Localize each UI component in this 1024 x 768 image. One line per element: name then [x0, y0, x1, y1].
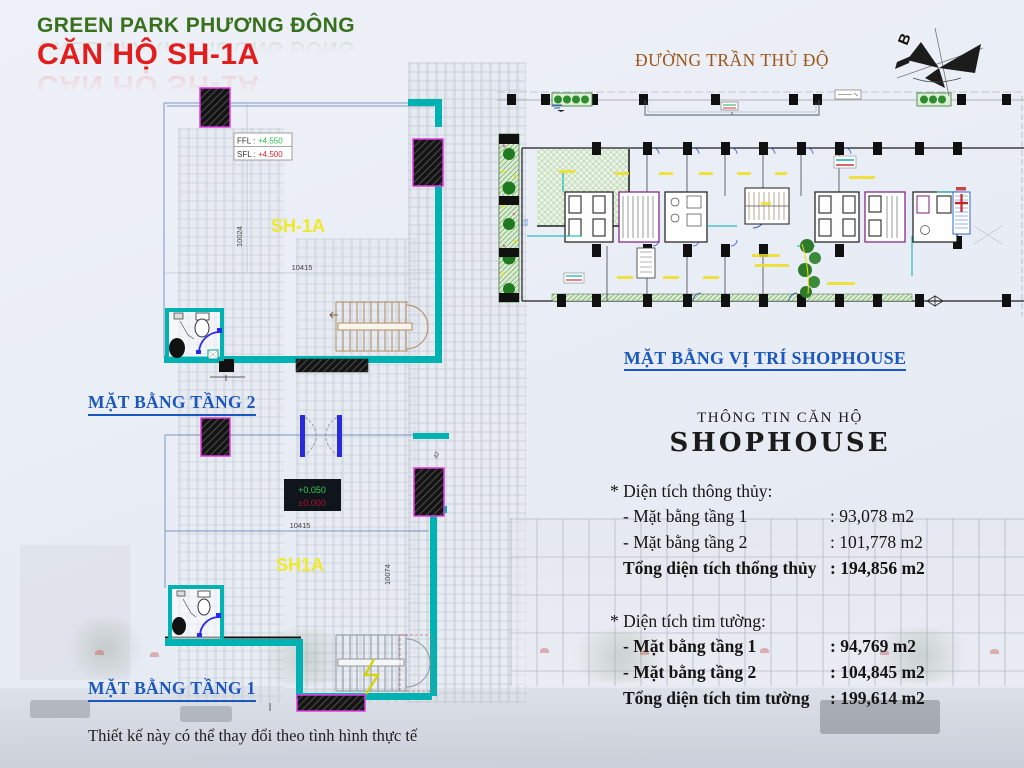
- total-label: Tổng diện tích tim tường: [623, 685, 830, 711]
- sink-fixture: [172, 617, 186, 635]
- info-title-small: THÔNG TIN CĂN HỘ: [620, 410, 940, 427]
- level-top-value: +0.050: [298, 485, 326, 495]
- double-door: [300, 415, 342, 457]
- area-info-block: * Diện tích thông thủy: - Mặt bằng tầng …: [610, 478, 1022, 711]
- unit-title-reflection: CĂN HỘ SH-1A: [37, 70, 260, 101]
- sfl-value: +4.500: [258, 150, 283, 159]
- dim-width: 10415: [292, 263, 313, 272]
- bathroom: [167, 310, 222, 359]
- wall-area-total: Tổng diện tích tim tường : 199,614 m2: [623, 685, 1022, 711]
- sfl-label: SFL :: [237, 150, 256, 159]
- level-box: FFL : +4.550 SFL : +4.500: [234, 133, 292, 160]
- project-title-text: GREEN PARK PHƯƠNG ĐÔNG: [37, 14, 355, 37]
- unit-code-label: SH1A: [276, 555, 324, 575]
- row-label: - Mặt bằng tầng 1: [623, 504, 830, 530]
- clear-area-total: Tổng diện tích thổng thủy : 194,856 m2: [623, 555, 1022, 581]
- unit-title: CĂN HỘ SH-1A CĂN HỘ SH-1A: [37, 39, 260, 101]
- row-label: - Mặt bằng tầng 2: [623, 660, 830, 686]
- watermark-car: [30, 700, 90, 718]
- bottom-green-strip: [552, 294, 912, 301]
- caption-site-plan: MẶT BẰNG VỊ TRÍ SHOPHOUSE: [600, 348, 930, 370]
- bathroom: [170, 587, 222, 641]
- column: [201, 418, 230, 456]
- row-value: : 101,778 m2: [830, 530, 923, 556]
- row-value: : 94,769 m2: [830, 634, 916, 660]
- staircase: [336, 635, 432, 691]
- disclaimer-note: Thiết kế này có thể thay đổi theo tình h…: [88, 726, 417, 746]
- row-value: : 93,078 m2: [830, 504, 914, 530]
- caption-floor1: MẶT BẰNG TẦNG 1: [88, 678, 256, 702]
- clear-area-row-floor1: - Mặt bằng tầng 1 : 93,078 m2: [623, 504, 1022, 530]
- info-header: THÔNG TIN CĂN HỘ SHOPHOUSE: [620, 410, 940, 458]
- row-value: : 104,845 m2: [830, 660, 925, 686]
- dim-height: 10074: [383, 564, 392, 585]
- row-label: - Mặt bằng tầng 2: [623, 530, 830, 556]
- street-name-label: ĐƯỜNG TRẦN THỦ ĐỘ: [612, 50, 852, 71]
- unit-title-text: CĂN HỘ SH-1A: [37, 38, 260, 71]
- watermark-umbrella: [95, 650, 104, 655]
- watermark-tree: [60, 618, 150, 678]
- compass-north-label: B: [895, 31, 915, 48]
- column: [414, 468, 444, 516]
- site-plan-shophouse: ||||||: [497, 86, 1024, 333]
- dim-height: 10024: [235, 226, 244, 247]
- floor-plan-level1: +0.050 ±0.000 10415 SH1A 10074 42: [160, 413, 460, 713]
- wall-area-section: * Diện tích tim tường: - Mặt bằng tầng 1…: [610, 608, 1022, 711]
- wall-area-row-floor2: - Mặt bằng tầng 2 : 104,845 m2: [623, 660, 1022, 686]
- watermark-building: [20, 545, 130, 680]
- sink-fixture: [169, 338, 185, 358]
- watermark-umbrella: [540, 648, 549, 653]
- floor-plan-level2: FFL : +4.550 SFL : +4.500 SH-1A 10024 10…: [150, 85, 450, 385]
- info-title-big: SHOPHOUSE: [620, 428, 940, 458]
- column: [296, 359, 368, 372]
- level-box: +0.050 ±0.000: [284, 479, 341, 511]
- row-label: - Mặt bằng tầng 1: [623, 634, 830, 660]
- total-value: : 199,614 m2: [830, 685, 925, 711]
- clear-area-heading: * Diện tích thông thủy:: [610, 478, 1022, 504]
- compass-icon: B: [883, 26, 993, 98]
- clear-area-row-floor2: - Mặt bằng tầng 2 : 101,778 m2: [623, 530, 1022, 556]
- caption-floor2: MẶT BẰNG TẦNG 2: [88, 392, 256, 416]
- column: [297, 695, 365, 711]
- garden-strip: [499, 134, 519, 302]
- spacer: [610, 581, 1022, 608]
- ffl-value: +4.550: [258, 137, 283, 146]
- level-bottom-value: ±0.000: [298, 498, 325, 508]
- column: [413, 139, 443, 186]
- total-label: Tổng diện tích thổng thủy: [623, 555, 830, 581]
- clear-area-section: * Diện tích thông thủy: - Mặt bằng tầng …: [610, 478, 1022, 581]
- watermark-umbrella: [150, 652, 159, 657]
- wall-area-heading: * Diện tích tim tường:: [610, 608, 1022, 634]
- staircase: [330, 302, 428, 351]
- ffl-label: FFL :: [237, 137, 255, 146]
- fire-stair: [953, 187, 970, 234]
- svg-text:||||||: ||||||: [523, 219, 528, 226]
- dim-small: 42: [433, 451, 441, 460]
- caption-site-plan-text: MẶT BẰNG VỊ TRÍ SHOPHOUSE: [624, 348, 907, 371]
- total-value: : 194,856 m2: [830, 555, 925, 581]
- landscape-trees: [798, 239, 821, 298]
- dim-width: 10415: [290, 521, 311, 530]
- wall-area-row-floor1: - Mặt bằng tầng 1 : 94,769 m2: [623, 634, 1022, 660]
- unit-code-label: SH-1A: [271, 216, 325, 236]
